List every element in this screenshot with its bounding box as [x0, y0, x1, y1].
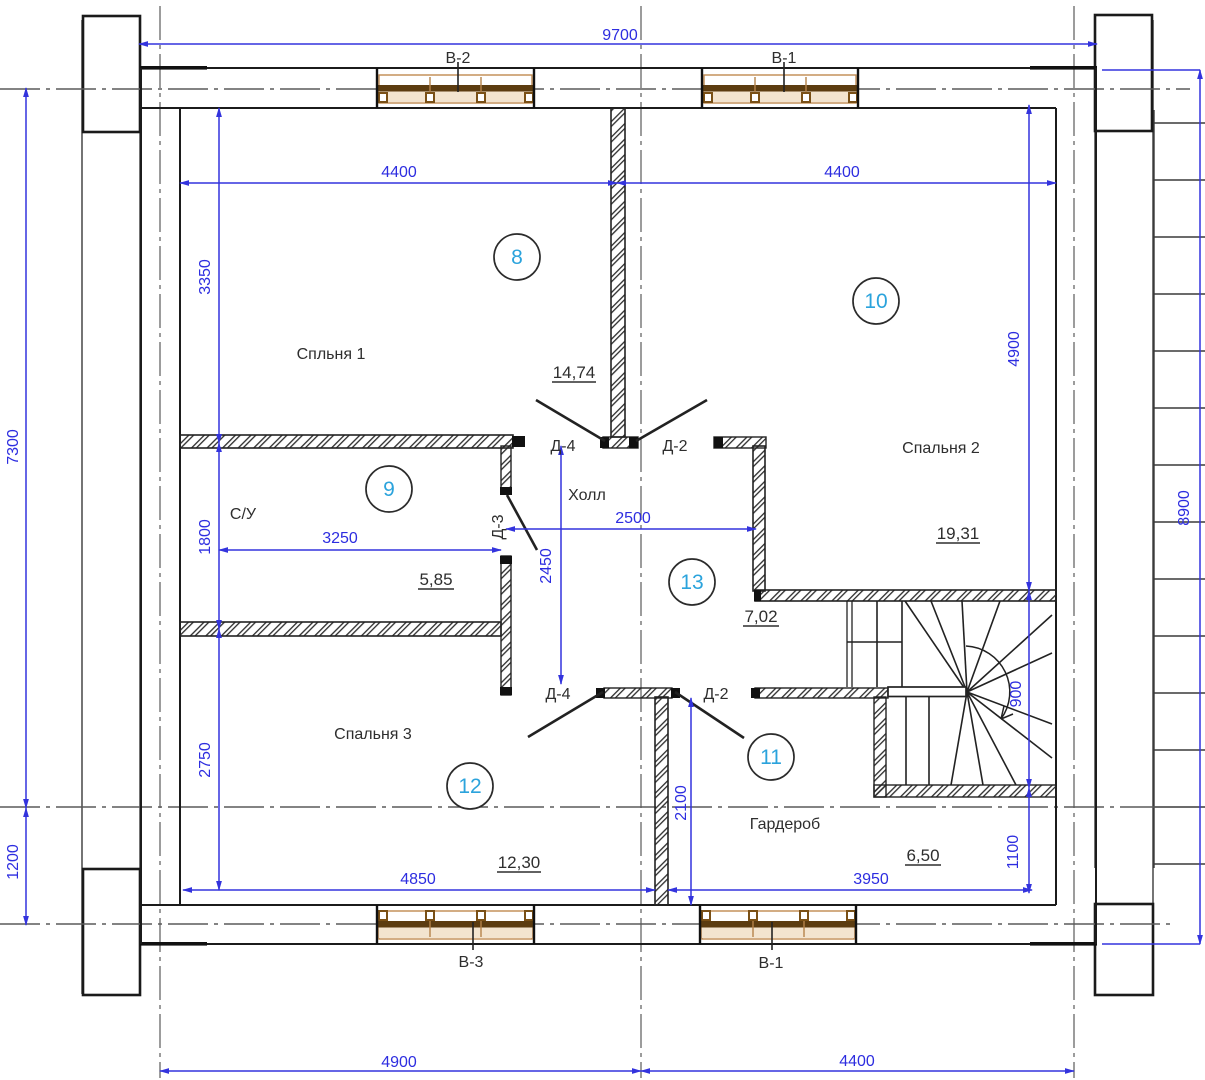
svg-text:С/У: С/У — [230, 506, 257, 523]
svg-text:3350: 3350 — [197, 259, 214, 295]
svg-text:4400: 4400 — [381, 164, 417, 181]
svg-text:8: 8 — [511, 246, 523, 269]
svg-text:Д-4: Д-4 — [545, 686, 570, 703]
svg-text:Д-3: Д-3 — [490, 514, 507, 539]
svg-text:8900: 8900 — [1176, 490, 1193, 526]
svg-text:4400: 4400 — [839, 1053, 875, 1070]
svg-text:14,74: 14,74 — [553, 363, 596, 382]
svg-text:9: 9 — [383, 478, 395, 501]
svg-text:Гардероб: Гардероб — [750, 816, 820, 833]
svg-text:10: 10 — [864, 290, 887, 313]
svg-text:2100: 2100 — [673, 785, 690, 821]
svg-text:1100: 1100 — [1005, 835, 1022, 870]
svg-text:2500: 2500 — [615, 510, 651, 527]
svg-text:13: 13 — [680, 571, 703, 594]
svg-text:3950: 3950 — [853, 871, 889, 888]
svg-text:12,30: 12,30 — [498, 853, 541, 872]
svg-text:В-1: В-1 — [759, 955, 784, 972]
svg-text:4850: 4850 — [400, 871, 436, 888]
svg-text:2750: 2750 — [197, 742, 214, 778]
svg-text:Д-4: Д-4 — [550, 438, 575, 455]
svg-text:7,02: 7,02 — [744, 607, 777, 626]
svg-text:4400: 4400 — [824, 164, 860, 181]
svg-text:6,50: 6,50 — [906, 846, 939, 865]
svg-text:4900: 4900 — [1006, 331, 1023, 367]
svg-text:3250: 3250 — [322, 530, 358, 547]
svg-text:11: 11 — [760, 746, 782, 769]
svg-text:Д-2: Д-2 — [662, 438, 687, 455]
svg-text:12: 12 — [458, 775, 481, 798]
svg-text:Спальня 3: Спальня 3 — [334, 726, 412, 743]
svg-text:2450: 2450 — [538, 548, 555, 584]
svg-text:В-1: В-1 — [772, 50, 797, 67]
svg-text:Спальня 2: Спальня 2 — [902, 440, 980, 457]
svg-text:900: 900 — [1008, 681, 1025, 708]
svg-text:4900: 4900 — [381, 1054, 417, 1071]
svg-text:19,31: 19,31 — [937, 524, 980, 543]
svg-text:Холл: Холл — [568, 487, 606, 504]
svg-text:7300: 7300 — [5, 429, 22, 465]
svg-text:В-3: В-3 — [459, 954, 484, 971]
svg-text:1200: 1200 — [5, 844, 22, 880]
svg-text:В-2: В-2 — [446, 50, 471, 67]
svg-text:9700: 9700 — [602, 27, 638, 44]
svg-text:Спльня 1: Спльня 1 — [297, 346, 366, 363]
svg-text:Д-2: Д-2 — [703, 686, 728, 703]
svg-text:5,85: 5,85 — [419, 570, 452, 589]
svg-text:1800: 1800 — [197, 519, 214, 555]
